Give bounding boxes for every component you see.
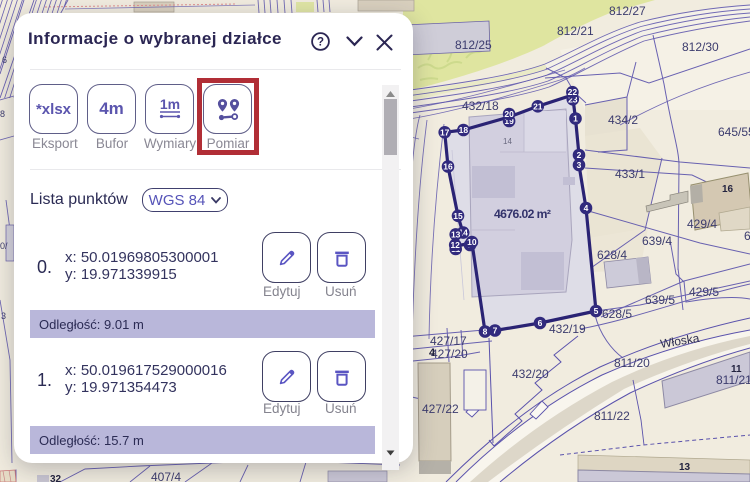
svg-text:639/4: 639/4 — [642, 234, 672, 248]
svg-text:14: 14 — [503, 137, 512, 146]
svg-text:1m: 1m — [159, 96, 179, 112]
svg-text:628/5: 628/5 — [602, 307, 632, 321]
svg-text:32: 32 — [50, 474, 62, 482]
svg-text:639/5: 639/5 — [645, 293, 675, 307]
svg-text:4: 4 — [584, 203, 589, 213]
svg-text:0/: 0/ — [0, 241, 8, 251]
svg-text:22: 22 — [568, 87, 578, 97]
svg-text:1: 1 — [573, 114, 578, 124]
svg-text:6: 6 — [2, 55, 7, 65]
svg-text:432/19: 432/19 — [549, 322, 586, 336]
svg-text:11: 11 — [731, 364, 742, 375]
svg-text:811/20: 811/20 — [614, 356, 650, 370]
svg-text:18: 18 — [459, 125, 469, 135]
svg-text:8: 8 — [483, 327, 488, 337]
svg-text:17: 17 — [440, 127, 450, 137]
svg-text:645/55: 645/55 — [718, 125, 750, 139]
svg-text:2: 2 — [577, 150, 582, 160]
svg-text:427/22: 427/22 — [422, 402, 459, 416]
svg-text:812/21: 812/21 — [557, 24, 594, 38]
svg-text:429/4: 429/4 — [687, 217, 717, 231]
svg-text:811/21: 811/21 — [716, 373, 750, 387]
svg-text:13: 13 — [679, 462, 691, 473]
svg-text:10: 10 — [467, 237, 477, 247]
svg-text:16: 16 — [722, 184, 734, 195]
svg-text:8: 8 — [0, 109, 5, 119]
svg-text:427/20: 427/20 — [431, 347, 468, 361]
svg-text:4: 4 — [429, 347, 436, 359]
svg-text:432/20: 432/20 — [512, 367, 549, 381]
svg-text:812/25: 812/25 — [455, 38, 492, 52]
svg-text:432/18: 432/18 — [462, 99, 499, 113]
svg-text:7: 7 — [493, 326, 498, 336]
svg-text:3: 3 — [1, 311, 6, 321]
svg-text:12: 12 — [450, 240, 460, 250]
svg-text:6: 6 — [538, 318, 543, 328]
svg-text:812/30: 812/30 — [682, 40, 719, 54]
svg-text:811/22: 811/22 — [594, 409, 630, 423]
svg-text:16: 16 — [443, 162, 453, 172]
svg-text:434/2: 434/2 — [608, 113, 638, 127]
svg-text:21: 21 — [533, 101, 543, 111]
svg-text:64: 64 — [744, 229, 750, 243]
svg-text:429/5: 429/5 — [689, 285, 719, 299]
svg-text:15: 15 — [453, 211, 463, 221]
svg-text:4676.02 m²: 4676.02 m² — [494, 207, 551, 221]
svg-text:427/17: 427/17 — [430, 334, 467, 348]
svg-text:?: ? — [317, 37, 324, 49]
svg-text:812/27: 812/27 — [609, 4, 646, 18]
svg-text:433/1: 433/1 — [615, 167, 645, 181]
svg-text:3: 3 — [577, 160, 582, 170]
svg-text:407/4: 407/4 — [151, 470, 181, 482]
svg-text:628/4: 628/4 — [597, 248, 627, 262]
svg-text:5: 5 — [594, 306, 599, 316]
svg-text:20: 20 — [504, 109, 514, 119]
svg-text:13: 13 — [451, 229, 461, 239]
